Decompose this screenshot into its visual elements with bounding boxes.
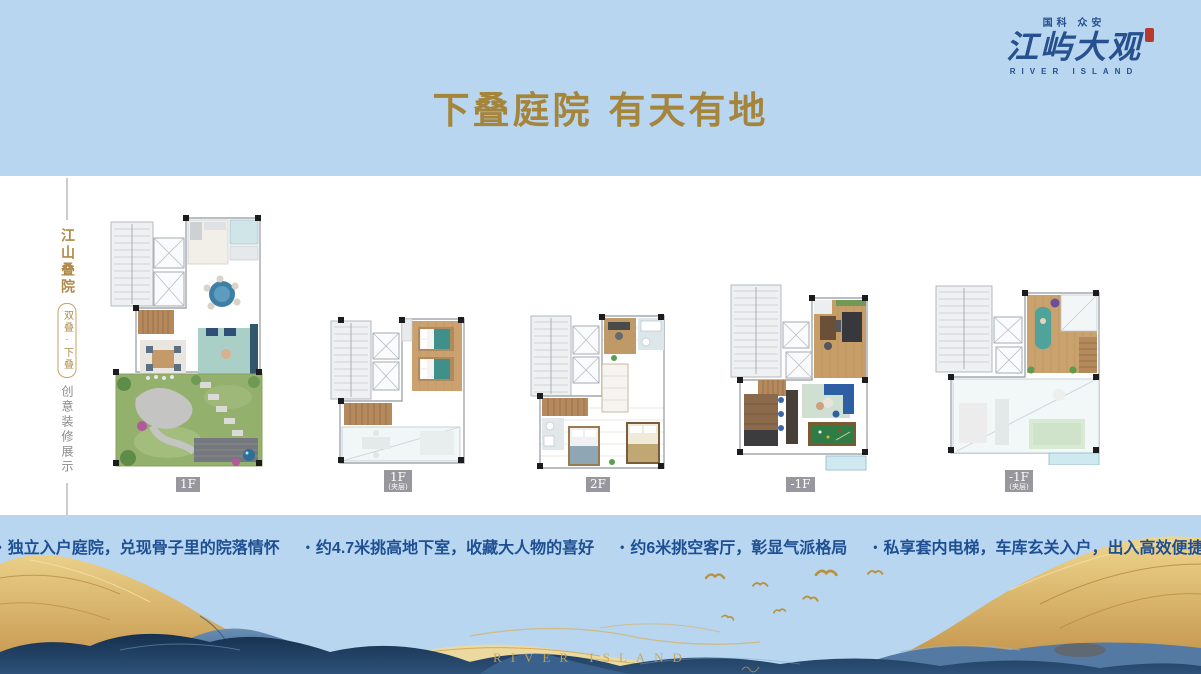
feature-item: 约4.7米挑高地下室，收藏大人物的喜好 xyxy=(306,534,594,558)
floor-plan-2f-image xyxy=(528,312,668,472)
slide: 国科 众安 江屿大观 RIVER ISLAND 下叠庭院 有天有地 江山叠院 双… xyxy=(0,0,1201,674)
elevator-shafts xyxy=(783,322,812,378)
double-height-void xyxy=(342,427,460,461)
brand-subtitle: RIVER ISLAND xyxy=(989,67,1159,76)
floor-plans-row: 1F xyxy=(108,208,1105,492)
stairwell xyxy=(111,222,153,306)
floor-plan-figure-b1f-loft: -1F (夹层) xyxy=(933,283,1105,492)
elevator-shafts xyxy=(154,238,184,306)
floor-plan-1f-loft-image xyxy=(328,315,468,465)
header-band: 国科 众安 江屿大观 RIVER ISLAND 下叠庭院 有天有地 xyxy=(0,0,1201,176)
light-well xyxy=(1049,453,1099,465)
floor-plan-b1f-loft-image xyxy=(933,283,1105,465)
stairwell xyxy=(731,285,781,377)
floor-plan-label: 2F xyxy=(586,477,610,492)
brand-pre-title: 国科 众安 xyxy=(989,14,1159,29)
elevator-shafts xyxy=(573,326,599,383)
brand-name: 江屿大观 xyxy=(1006,28,1142,66)
page-title: 下叠庭院 有天有地 xyxy=(0,92,1201,129)
floor-plan-figure-1f: 1F xyxy=(108,212,268,492)
floor-plan-label: -1F (夹层) xyxy=(1005,470,1033,492)
flying-birds xyxy=(706,571,882,620)
floor-plan-1f-image xyxy=(108,212,268,472)
divider-line-top xyxy=(67,178,68,220)
floor-plan-figure-1f-loft: 1F (夹层) xyxy=(328,315,468,492)
floor-plan-label: 1F (夹层) xyxy=(384,470,411,492)
garden xyxy=(116,374,262,466)
stairwell xyxy=(331,321,371,399)
feature-item: 独立入户庭院，兑现骨子里的院落情怀 xyxy=(0,534,280,558)
feature-item: 私享套内电梯，车库玄关入户，出入高效便捷 xyxy=(873,534,1201,558)
floor-plan-figure-2f: 2F xyxy=(528,312,668,492)
product-name-label: 江山叠院 xyxy=(60,228,74,296)
double-height-void xyxy=(953,379,1099,453)
floor-plans-section: 江山叠院 双叠·下叠 创意装修展示 xyxy=(0,176,1201,515)
watermark-text: RIVER ISLAND xyxy=(493,650,691,665)
stairwell xyxy=(531,316,571,396)
floor-plan-label: 1F xyxy=(176,477,200,492)
feature-item: 约6米挑空客厅，彰显气派格局 xyxy=(620,534,847,558)
floor-plan-b1f-image xyxy=(728,282,873,472)
floor-plan-label: -1F xyxy=(786,477,814,492)
brand-logo: 国科 众安 江屿大观 RIVER ISLAND xyxy=(989,14,1159,76)
light-well xyxy=(826,456,866,470)
elevator-shafts xyxy=(373,333,399,390)
brand-name-row: 江屿大观 xyxy=(1006,30,1142,65)
elevator-shafts xyxy=(994,317,1022,373)
stairwell xyxy=(936,286,992,372)
footer-band: RIVER ISLAND 独立入户庭院，兑现骨子里的院落情怀 约4.7米挑高地下… xyxy=(0,515,1201,674)
floor-plan-figure-b1f: -1F xyxy=(728,282,873,492)
seal-icon xyxy=(1145,28,1154,42)
display-note-label: 创意装修展示 xyxy=(61,385,73,475)
feature-list: 独立入户庭院，兑现骨子里的院落情怀 约4.7米挑高地下室，收藏大人物的喜好 约6… xyxy=(0,534,1201,558)
unit-type-badge: 双叠·下叠 xyxy=(58,303,77,378)
side-vertical-label: 江山叠院 双叠·下叠 创意装修展示 xyxy=(58,178,77,555)
distant-ridges xyxy=(470,624,760,644)
